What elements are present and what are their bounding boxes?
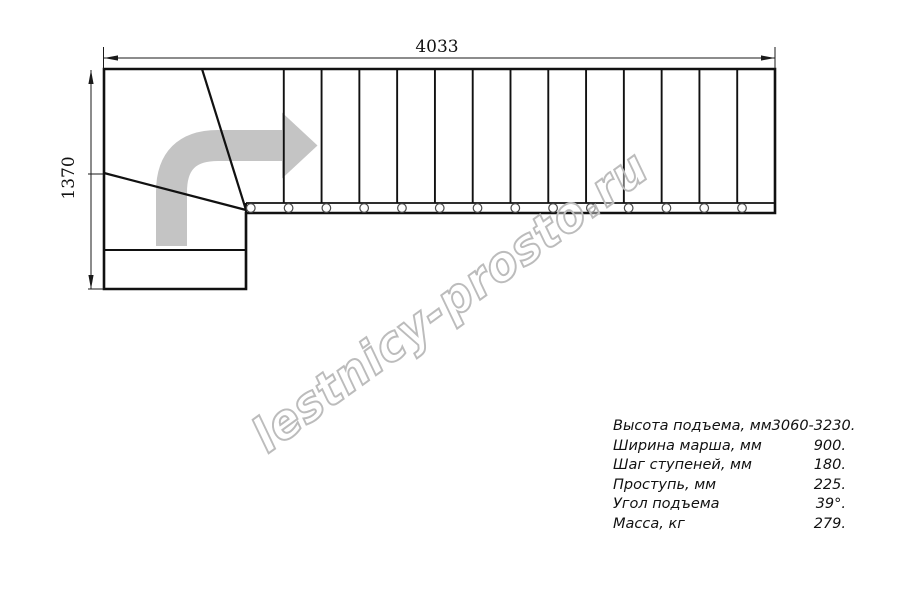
dimension-total-width: 1370 (59, 156, 79, 199)
dim-arrow-left-icon (104, 55, 118, 60)
spec-label: Масса, кг (613, 515, 685, 535)
step-lines (284, 69, 737, 203)
spec-table: Высота подъема, мм 3060-3230. Ширина мар… (613, 417, 846, 534)
spec-value: 225. (814, 476, 846, 496)
dim-arrow-right-icon (761, 55, 775, 60)
baluster-circle-icon (247, 204, 256, 213)
spec-value: 180. (814, 456, 846, 476)
spec-value: 39°. (816, 495, 846, 515)
spec-label: Проступь, мм (613, 476, 716, 496)
spec-row: Высота подъема, мм 3060-3230. (613, 417, 846, 437)
baluster-circle-icon (700, 204, 709, 213)
baluster-circle-icon (738, 204, 747, 213)
direction-arrow (172, 113, 318, 247)
stair-inner-lines (104, 69, 775, 289)
spec-label: Ширина марша, мм (613, 437, 762, 457)
spec-label: Угол подъема (613, 495, 720, 515)
spec-row: Ширина марша, мм 900. (613, 437, 846, 457)
spec-value: 3060-3230. (772, 417, 856, 437)
baluster-circle-icon (473, 204, 482, 213)
dimension-total-length: 4033 (415, 37, 458, 57)
spec-row: Масса, кг 279. (613, 515, 846, 535)
baluster-circle-icon (360, 204, 369, 213)
direction-arrow-head (282, 113, 318, 179)
baluster-circle-icon (435, 204, 444, 213)
stair-outline (104, 69, 775, 289)
stair-drawing-page: 4033 1370 lestnicy-prosto.ru Высота подъ… (0, 0, 900, 600)
spec-row: Проступь, мм 225. (613, 476, 846, 496)
balusters (247, 204, 747, 213)
baluster-circle-icon (398, 204, 407, 213)
baluster-circle-icon (511, 204, 520, 213)
spec-value: 279. (814, 515, 846, 535)
dim-arrow-up-icon (88, 70, 93, 84)
dim-arrow-down-icon (88, 275, 93, 289)
watermark-text: lestnicy-prosto.ru (242, 139, 659, 464)
spec-label: Шаг ступеней, мм (613, 456, 752, 476)
baluster-circle-icon (284, 204, 293, 213)
spec-value: 900. (814, 437, 846, 457)
baluster-circle-icon (662, 204, 671, 213)
spec-label: Высота подъема, мм (613, 417, 772, 437)
dimension-arrowheads (88, 55, 775, 289)
baluster-circle-icon (322, 204, 331, 213)
spec-row: Угол подъема 39°. (613, 495, 846, 515)
spec-row: Шаг ступеней, мм 180. (613, 456, 846, 476)
